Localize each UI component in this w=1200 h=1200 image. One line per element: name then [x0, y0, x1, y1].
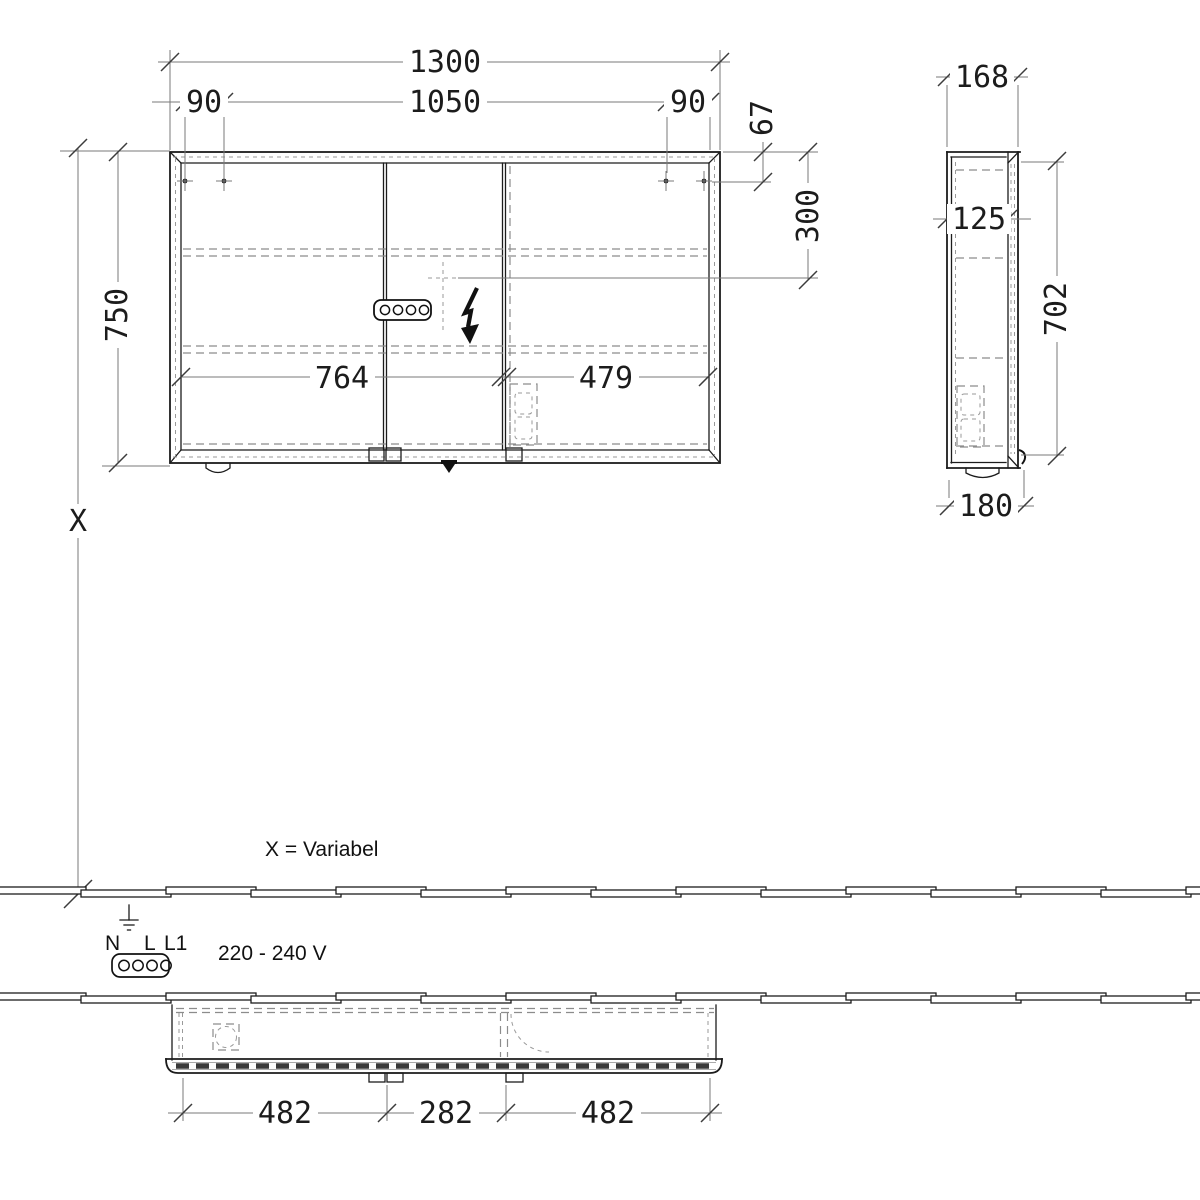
- power-legend: N L L1: [105, 905, 187, 977]
- plan-outline: [172, 1005, 716, 1060]
- side-cabinet-outline: [947, 152, 1020, 468]
- dim-variable-height: X: [69, 504, 87, 539]
- variable-note: X = Variabel: [265, 838, 378, 861]
- dim-inner-depth: 125: [952, 202, 1006, 237]
- dim-door-width-left: 764: [315, 361, 369, 396]
- dim-hole-span: 1050: [409, 85, 481, 120]
- front-cabinet-outline: [170, 152, 720, 463]
- dim-height: 750: [100, 288, 135, 342]
- dim-hole-offset-right: 90: [670, 85, 706, 120]
- socket-center-mark: [428, 262, 458, 330]
- voltage-label: 220 - 240 V: [218, 942, 327, 965]
- plan-divider-hidden: [501, 1013, 508, 1057]
- screw-hole-icon: [216, 171, 232, 191]
- side-mirror-door: [1008, 152, 1018, 468]
- mounting-clip-icon: [441, 460, 457, 473]
- screw-hole-icon: [658, 171, 674, 191]
- screw-hole-marks: [177, 171, 712, 191]
- dim-total-width: 1300: [409, 45, 481, 80]
- wall-break-row-lower: [0, 993, 1200, 1003]
- dim-hole-offset-left: 90: [186, 85, 222, 120]
- side-view: 168 125 702 180: [933, 60, 1074, 524]
- dim-total-depth: 180: [959, 489, 1013, 524]
- terminal-block-icon: [112, 954, 171, 977]
- technical-drawing: 1300 1050 90 90 67 300 750 764 479 X: [0, 0, 1200, 1200]
- dim-span-center: 282: [419, 1096, 473, 1131]
- dim-door-height: 702: [1039, 282, 1074, 336]
- dim-span-right: 482: [581, 1096, 635, 1131]
- dim-depth: 168: [955, 60, 1009, 95]
- terminal-l1-label: L1: [164, 932, 187, 955]
- dim-hole-top-offset: 67: [745, 100, 780, 136]
- lightning-bolt-icon: [461, 288, 479, 344]
- bottom-view: 482 282 482: [166, 1005, 722, 1131]
- dim-span-left: 482: [258, 1096, 312, 1131]
- electrical-box-hidden: [510, 384, 537, 445]
- terminal-n-label: N: [105, 932, 120, 955]
- dim-socket-offset: 300: [791, 189, 826, 243]
- plan-mirror-door-section: [166, 1059, 722, 1073]
- dim-door-width-right: 479: [579, 361, 633, 396]
- door-stop-detail: [1019, 450, 1025, 464]
- front-view: 1300 1050 90 90 67 300 750 764 479 X: [60, 45, 826, 908]
- wall-break-row-upper: [0, 887, 1200, 897]
- side-bottom-tab-detail: [966, 468, 999, 478]
- terminal-l-label: L: [144, 932, 156, 955]
- bottom-tab-detail: [206, 463, 230, 473]
- door-swing-arc: [511, 1014, 549, 1052]
- ground-symbol-icon: [120, 905, 138, 930]
- notes: X = Variabel 220 - 240 V N L L1: [105, 838, 378, 977]
- power-socket-icon: [374, 300, 431, 320]
- plan-cable-outlet: [213, 1024, 239, 1050]
- screw-hole-icon: [177, 171, 193, 191]
- side-electrical-box-hidden: [957, 386, 984, 447]
- plan-hinge-tabs: [369, 1073, 523, 1082]
